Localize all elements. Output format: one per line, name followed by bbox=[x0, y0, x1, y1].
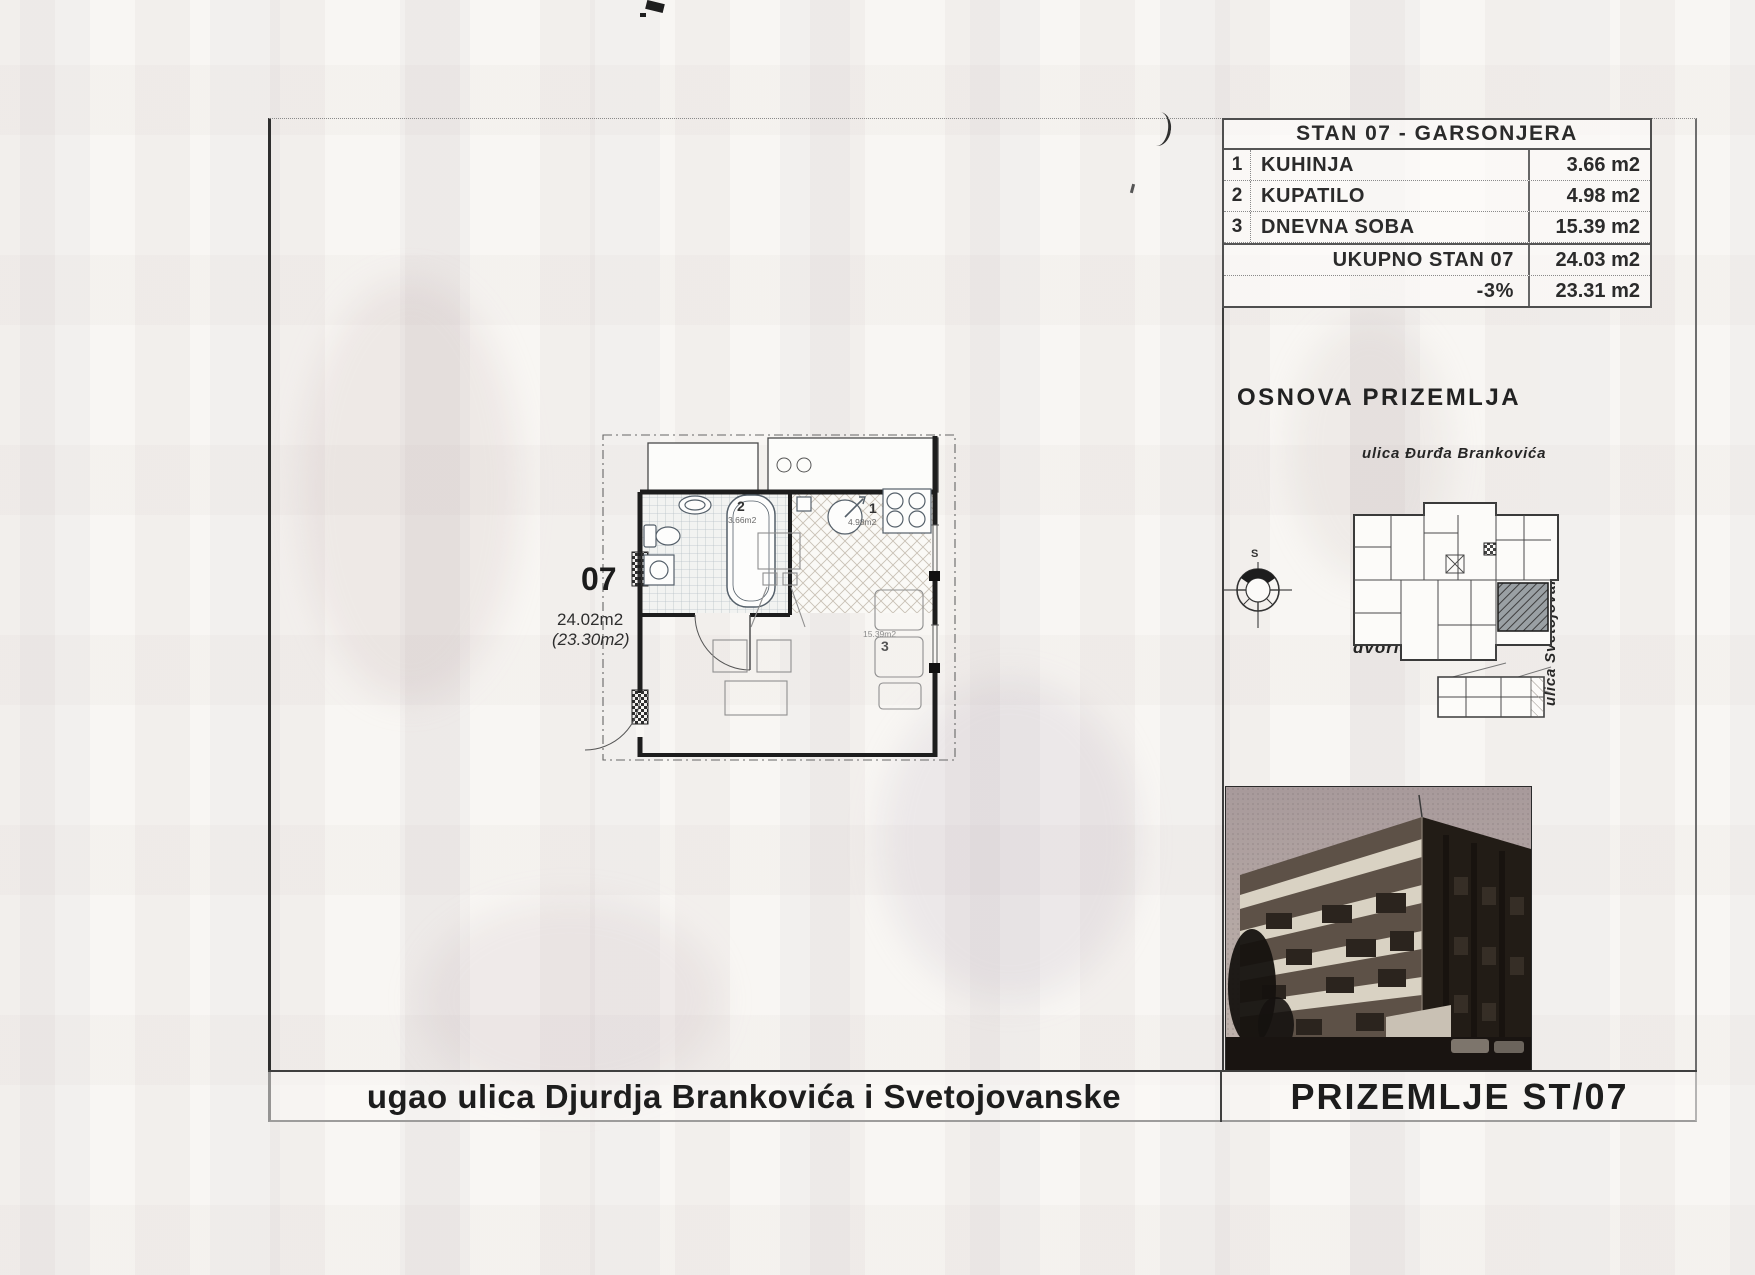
room-area-bathroom: 3.66m2 bbox=[728, 515, 757, 525]
room-name: DNEVNA SOBA bbox=[1251, 212, 1528, 242]
room-area-living: 15.39m2 bbox=[863, 629, 896, 639]
unit-floor-plan-drawing: 2 3.66m2 1 4.98m2 15.39m2 3 07 24.02m2 (… bbox=[545, 385, 965, 780]
table-row: 3 DNEVNA SOBA 15.39 m2 bbox=[1224, 212, 1650, 243]
room-area: 4.98 m2 bbox=[1528, 181, 1650, 211]
table-row: 1 KUHINJA 3.66 m2 bbox=[1224, 150, 1650, 181]
area-table-title: STAN 07 - GARSONJERA bbox=[1224, 120, 1650, 150]
street-label-top: ulica Đurđa Brankovića bbox=[1362, 445, 1546, 462]
section-heading: OSNOVA PRIZEMLJA bbox=[1237, 384, 1521, 412]
room-number: 2 bbox=[1224, 181, 1251, 211]
compass-icon bbox=[1224, 548, 1292, 634]
table-total-row: UKUPNO STAN 07 24.03 m2 bbox=[1224, 243, 1650, 276]
scan-speck bbox=[645, 0, 665, 13]
total-label: UKUPNO STAN 07 bbox=[1224, 245, 1528, 275]
discount-value: 23.31 m2 bbox=[1528, 276, 1650, 306]
room-number: 3 bbox=[1224, 212, 1251, 242]
site-plan-drawing bbox=[1346, 485, 1566, 735]
highlighted-unit-07 bbox=[1498, 583, 1548, 631]
unit-area-net: (23.30m2) bbox=[552, 630, 629, 649]
room-area: 3.66 m2 bbox=[1528, 150, 1650, 180]
sheet-title: ugao ulica Djurdja Brankovića i Svetojov… bbox=[268, 1072, 1222, 1122]
room-number: 1 bbox=[1224, 150, 1251, 180]
room-name: KUHINJA bbox=[1251, 150, 1528, 180]
total-value: 24.03 m2 bbox=[1528, 245, 1650, 275]
building-photo bbox=[1225, 786, 1532, 1072]
room-label-kitchen: 1 bbox=[869, 500, 877, 516]
compass-north-letter: S bbox=[1251, 548, 1258, 560]
room-label-living: 3 bbox=[881, 638, 889, 654]
room-area-kitchen: 4.98m2 bbox=[848, 517, 877, 527]
sheet-code: PRIZEMLJE ST/07 bbox=[1222, 1072, 1697, 1122]
footer-bar: ugao ulica Djurdja Brankovića i Svetojov… bbox=[268, 1070, 1697, 1122]
scan-speck bbox=[640, 13, 646, 17]
discount-label: -3% bbox=[1224, 276, 1528, 306]
scanned-floorplan-sheet: STAN 07 - GARSONJERA 1 KUHINJA 3.66 m2 2… bbox=[0, 0, 1755, 1275]
area-table: STAN 07 - GARSONJERA 1 KUHINJA 3.66 m2 2… bbox=[1222, 118, 1652, 308]
unit-area-gross: 24.02m2 bbox=[557, 610, 623, 629]
table-row: 2 KUPATILO 4.98 m2 bbox=[1224, 181, 1650, 212]
unit-number-label: 07 bbox=[581, 561, 617, 597]
room-label-bathroom: 2 bbox=[737, 498, 745, 514]
room-name: KUPATILO bbox=[1251, 181, 1528, 211]
room-area: 15.39 m2 bbox=[1528, 212, 1650, 242]
table-discount-row: -3% 23.31 m2 bbox=[1224, 276, 1650, 306]
